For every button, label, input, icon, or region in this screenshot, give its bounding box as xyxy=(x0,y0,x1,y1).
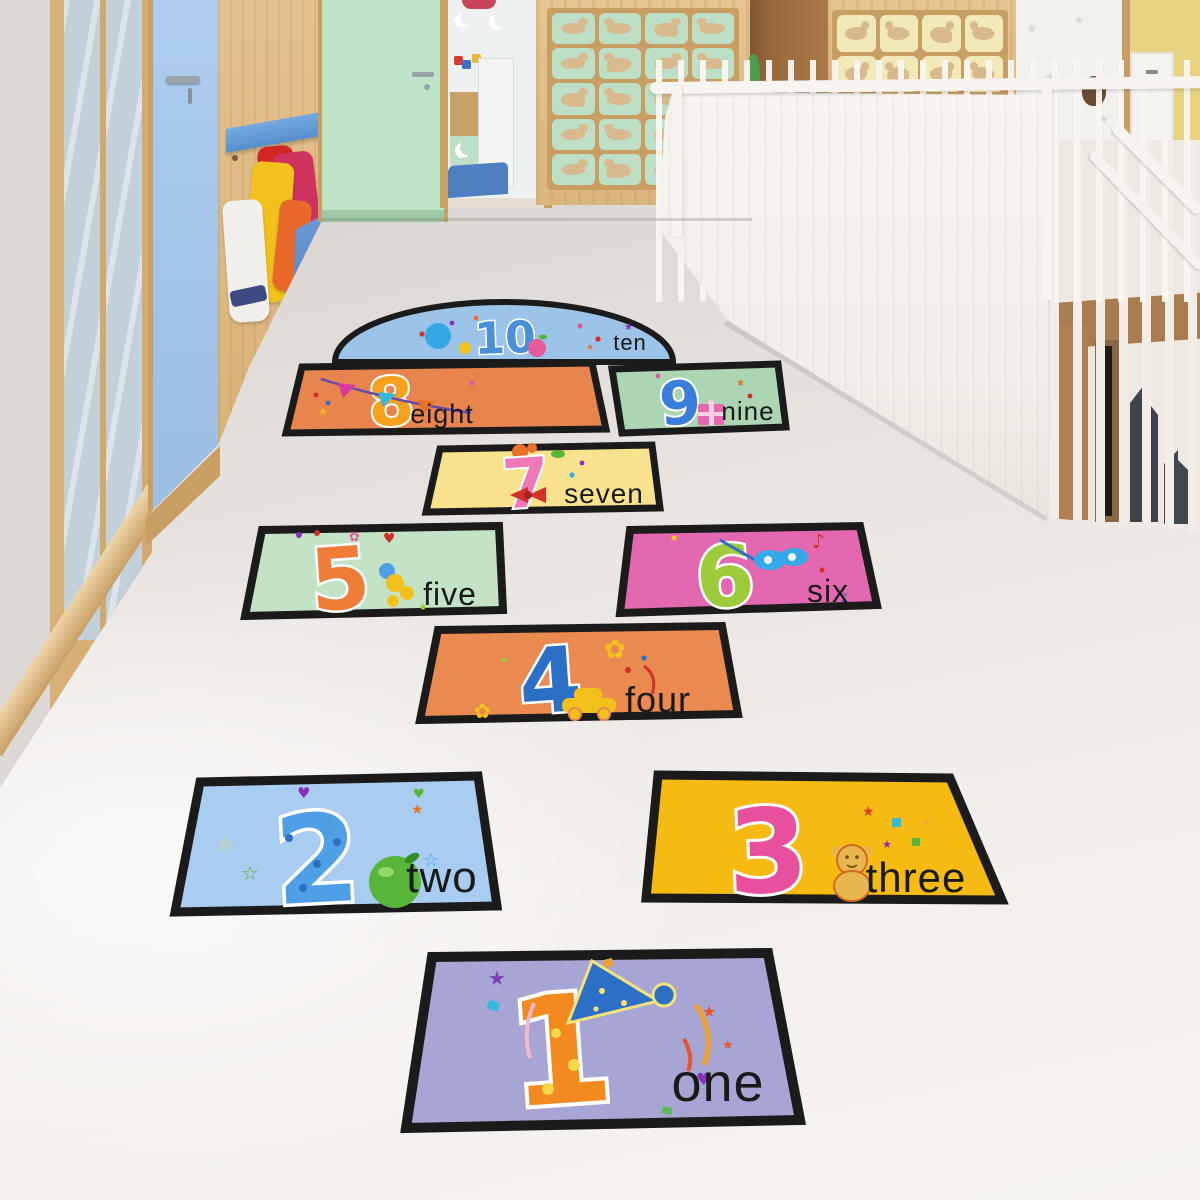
mint-door-keyhole xyxy=(424,84,430,90)
jacket-trim xyxy=(229,284,268,307)
confetti xyxy=(474,316,479,321)
gift-ribbon xyxy=(698,412,724,416)
sticker-six: 6 ♪ ♪ six xyxy=(612,518,888,624)
gift-bow xyxy=(708,400,714,406)
confetti xyxy=(656,374,661,379)
confetti xyxy=(501,657,506,662)
confetti xyxy=(425,323,451,349)
hat-star xyxy=(593,1006,598,1011)
mint-door-handle xyxy=(412,72,434,77)
hat-star xyxy=(599,988,605,994)
animal-tile xyxy=(599,154,642,185)
mask-eye xyxy=(788,553,796,561)
confetti-star: ★ xyxy=(862,804,875,820)
word-four: four xyxy=(625,679,691,720)
sticker-one: 1 ★ ★ ★ ♥ one xyxy=(396,943,814,1139)
animal-tile xyxy=(552,154,595,185)
confetti-star: ★ xyxy=(411,802,424,818)
confetti-star: ★ xyxy=(922,818,931,829)
sticker-seven: 7 seven xyxy=(416,437,672,525)
apple-highlight xyxy=(378,867,394,877)
music-note: ♪ xyxy=(812,529,825,553)
snowflake-dot xyxy=(313,860,321,868)
coat-hook xyxy=(232,155,238,161)
flower: ✿ xyxy=(474,699,491,723)
bow-cluster-icon xyxy=(387,595,399,607)
mask-eye xyxy=(764,556,772,564)
animal-tile xyxy=(552,83,595,114)
blue-door xyxy=(148,0,218,530)
word-eight: eight xyxy=(410,399,474,429)
flower-dot xyxy=(551,1028,561,1038)
sticker-eight: 8 ★ eight xyxy=(276,353,616,445)
sticker-five: 5 ✿ ♥ five xyxy=(237,519,513,627)
number-5-art: 5 xyxy=(307,528,374,632)
animal-tile xyxy=(599,13,642,44)
hanging-keys xyxy=(188,88,192,104)
leaf xyxy=(551,450,565,458)
animal-tile xyxy=(552,48,595,79)
confetti-square xyxy=(912,838,920,846)
confetti-star: ★ xyxy=(586,343,594,353)
flower: ✿ xyxy=(349,530,360,545)
snowflake-dot xyxy=(285,834,293,842)
animal-tile xyxy=(599,83,642,114)
confetti xyxy=(470,381,475,386)
flower-dot xyxy=(568,1059,580,1071)
toy-car-cabin xyxy=(574,688,602,701)
animal-tile xyxy=(552,119,595,150)
confetti xyxy=(569,472,574,477)
wood-shelf xyxy=(450,92,478,136)
heart: ♥ xyxy=(297,784,310,802)
moon-decal xyxy=(460,10,475,25)
moon-decal xyxy=(494,12,509,27)
teddy-eye xyxy=(855,855,859,859)
sticker-four: 4 ✿ ✿ four xyxy=(412,618,748,730)
railing-newel-post xyxy=(672,86,682,236)
bow-cluster-icon xyxy=(400,586,414,600)
railing-newel-post xyxy=(1042,88,1052,300)
word-one: one xyxy=(671,1053,764,1113)
mint-green-door xyxy=(318,0,448,222)
toy-blue xyxy=(462,60,471,69)
number-9-art: 9 xyxy=(657,368,704,441)
left-window-wall xyxy=(0,0,152,800)
word-six: six xyxy=(807,573,849,609)
confetti xyxy=(819,567,824,572)
teddy-eye xyxy=(845,855,849,859)
white-jacket xyxy=(222,199,270,323)
confetti-star: ★ xyxy=(488,966,506,990)
confetti xyxy=(577,323,582,328)
animal-tile xyxy=(599,119,642,150)
animal-tile xyxy=(692,13,735,44)
word-seven: seven xyxy=(564,478,644,509)
confetti xyxy=(580,461,585,466)
heart: ♥ xyxy=(383,531,396,547)
confetti xyxy=(326,401,331,406)
confetti-star: ★ xyxy=(318,405,328,418)
car-wheel xyxy=(598,708,610,720)
party-hat-pompom xyxy=(653,984,675,1006)
star-outline: ☆ xyxy=(241,861,259,885)
confetti xyxy=(296,532,302,538)
apple-leaf xyxy=(539,335,547,340)
confetti-star: ★ xyxy=(702,1002,716,1021)
heart: ♥ xyxy=(413,787,425,802)
teddy-body xyxy=(834,871,870,901)
sticker-three: 3 ★ ★ ★ three xyxy=(636,764,1014,914)
kindergarten-hallway-scene: ★ ★ ★ ★ ★ ★ ★ 10 xyxy=(0,0,1200,1200)
hat-star xyxy=(621,1000,627,1006)
sticker-nine: 9 ★ nine xyxy=(602,354,798,444)
confetti xyxy=(450,321,455,326)
balustrade-panel xyxy=(652,80,1052,532)
snowflake-dot xyxy=(299,884,307,892)
confetti xyxy=(641,655,646,660)
confetti xyxy=(314,530,320,536)
star-outline: ☆ xyxy=(217,834,233,855)
confetti-square xyxy=(892,818,901,827)
animal-tile xyxy=(645,13,688,44)
number-3-art: 3 xyxy=(725,784,810,922)
window-mullion xyxy=(100,0,106,640)
animal-tile xyxy=(965,15,1004,52)
moon-decal xyxy=(460,140,475,155)
confetti xyxy=(625,667,631,673)
confetti-star: ★ xyxy=(882,838,892,851)
animal-tile xyxy=(552,13,595,44)
bow-knot xyxy=(524,491,532,499)
animal-tile xyxy=(599,48,642,79)
car-wheel xyxy=(569,708,581,720)
word-two: two xyxy=(406,853,477,902)
flower-dot xyxy=(542,1083,554,1095)
glass-door-threshold xyxy=(448,198,544,208)
confetti xyxy=(314,393,319,398)
blue-door-handle xyxy=(166,76,200,83)
animal-tile xyxy=(880,15,919,52)
number-7-art: 7 xyxy=(500,443,553,525)
sun-flower: ✿ xyxy=(604,635,626,665)
confetti-star: ★ xyxy=(736,378,745,389)
red-canopy xyxy=(462,0,496,9)
animal-tile xyxy=(922,15,961,52)
word-three: three xyxy=(866,854,967,901)
blue-bin xyxy=(448,162,508,198)
blue-door-frame xyxy=(148,0,153,520)
animal-tile xyxy=(837,15,876,52)
star-decal: ★ xyxy=(1074,14,1084,27)
sticker-two: 2 ☆ ☆ ☆ ★ ♥ ♥ two xyxy=(165,766,507,922)
confetti xyxy=(671,535,676,540)
confetti xyxy=(595,336,600,341)
snowflake-dot xyxy=(333,838,341,846)
star-decal: ★ xyxy=(1026,22,1038,37)
wall-floor-line xyxy=(322,218,752,221)
confetti-star: ★ xyxy=(722,1038,734,1053)
word-five: five xyxy=(423,576,477,612)
word-ten: ten xyxy=(613,330,647,355)
confetti xyxy=(419,331,424,336)
word-nine: nine xyxy=(721,396,774,426)
